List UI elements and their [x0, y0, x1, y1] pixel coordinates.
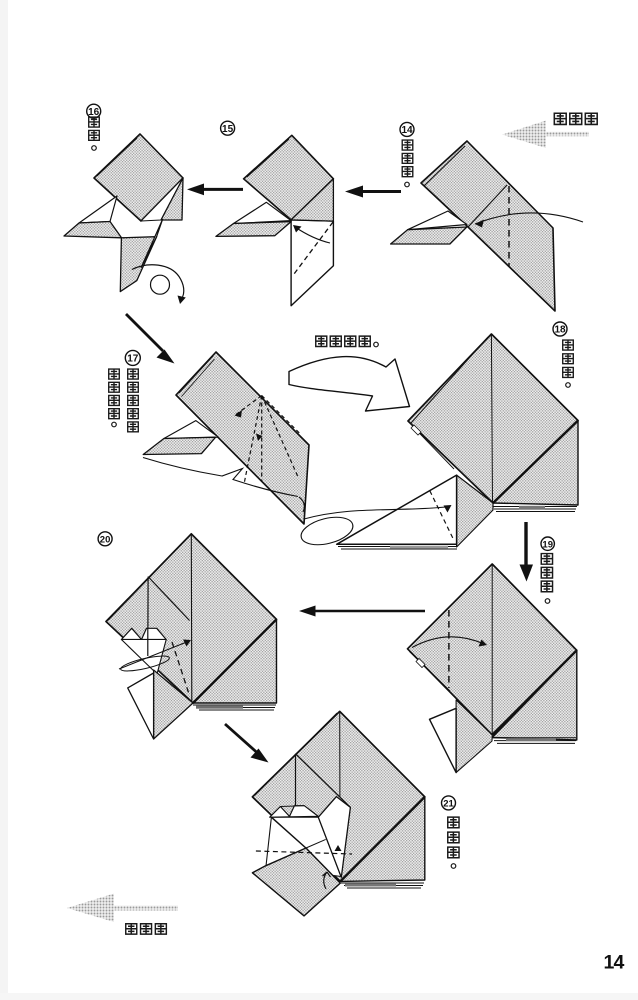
svg-text:19: 19: [542, 539, 553, 550]
svg-text:14: 14: [401, 125, 413, 136]
svg-text:21: 21: [443, 799, 454, 810]
svg-text:20: 20: [100, 534, 111, 545]
svg-text:16: 16: [88, 107, 100, 118]
svg-text:15: 15: [222, 124, 234, 135]
svg-text:17: 17: [127, 354, 139, 365]
svg-text:18: 18: [554, 325, 566, 336]
svg-text:14: 14: [604, 952, 625, 974]
